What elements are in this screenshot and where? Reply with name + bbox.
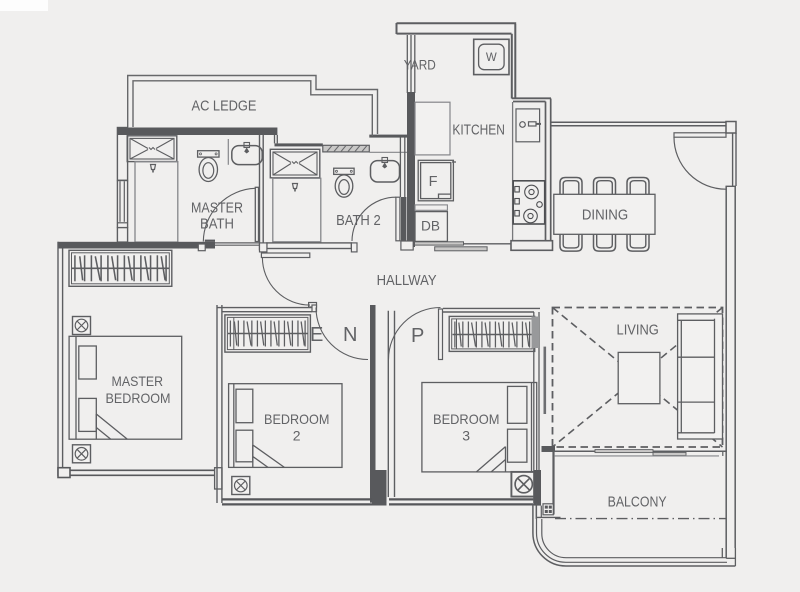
svg-text:MASTER: MASTER [191,201,243,217]
svg-text:BEDROOM: BEDROOM [106,390,171,406]
svg-text:BEDROOM: BEDROOM [433,411,499,427]
svg-text:DB: DB [421,218,440,233]
svg-text:N: N [343,324,357,346]
svg-text:3: 3 [462,427,470,443]
svg-text:F: F [429,174,438,190]
svg-text:2: 2 [293,428,301,444]
svg-text:BATH: BATH [200,217,234,233]
svg-text:BALCONY: BALCONY [608,495,667,511]
svg-text:HALLWAY: HALLWAY [377,272,437,289]
svg-text:LIVING: LIVING [617,322,659,339]
svg-text:DINING: DINING [582,207,628,224]
svg-text:P: P [411,325,424,347]
svg-text:YARD: YARD [404,57,436,73]
svg-text:BATH 2: BATH 2 [336,213,381,229]
svg-text:W: W [486,52,497,64]
svg-text:E: E [310,324,323,346]
svg-text:AC LEDGE: AC LEDGE [192,98,257,115]
svg-text:KITCHEN: KITCHEN [452,121,505,138]
svg-text:BEDROOM: BEDROOM [264,411,329,427]
svg-text:MASTER: MASTER [112,373,164,389]
